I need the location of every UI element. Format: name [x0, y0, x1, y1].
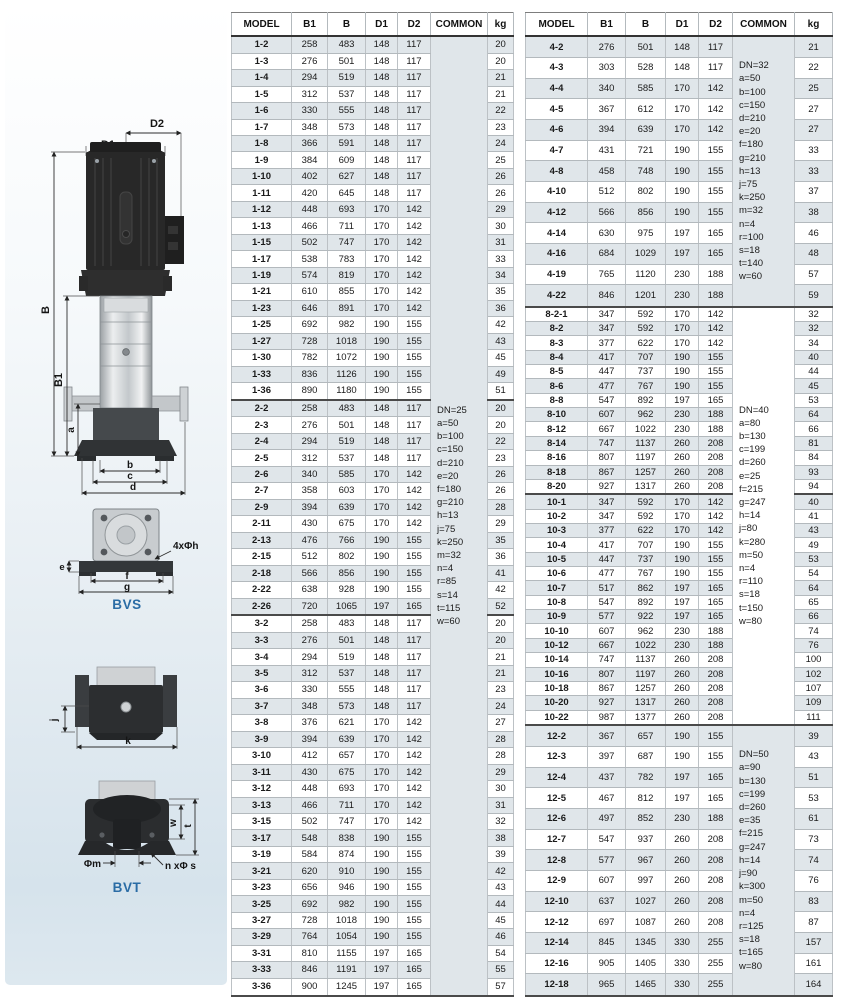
- dimension-cell: 170: [366, 731, 398, 747]
- model-cell: 1-10: [232, 168, 292, 184]
- dimension-cell: 142: [398, 781, 431, 797]
- dim-label-n-phi-s: n xΦ s: [165, 861, 196, 872]
- model-cell: 3-7: [232, 698, 292, 714]
- dim-label-g: g: [124, 582, 130, 593]
- model-cell: 1-13: [232, 218, 292, 234]
- weight-cell: 34: [795, 336, 833, 350]
- column-stub: [97, 667, 155, 687]
- common-dimension-line: d=210: [739, 112, 794, 125]
- dimension-cell: 170: [366, 499, 398, 515]
- model-cell: 3-29: [232, 929, 292, 945]
- dimension-cell: 208: [699, 465, 733, 479]
- common-dimension-line: d=260: [739, 801, 794, 814]
- common-dimension-line: n=4: [739, 907, 794, 920]
- common-dimension-line: t=115: [437, 602, 487, 615]
- weight-cell: 32: [488, 813, 514, 829]
- model-cell: 3-11: [232, 764, 292, 780]
- dimension-cell: 330: [666, 933, 699, 954]
- dimension-cell: 1197: [626, 667, 666, 681]
- terminal-box: [165, 216, 184, 264]
- model-cell: 2-9: [232, 499, 292, 515]
- dimension-cell: 197: [666, 610, 699, 624]
- dimension-cell: 260: [666, 451, 699, 465]
- dimension-cell: 1072: [328, 350, 366, 366]
- common-dimension-line: k=250: [437, 536, 487, 549]
- dimension-cell: 377: [588, 336, 626, 350]
- weight-cell: 54: [795, 567, 833, 581]
- dimension-cell: 142: [398, 300, 431, 316]
- dimension-cell: 377: [588, 524, 626, 538]
- weight-cell: 81: [795, 436, 833, 450]
- weight-cell: 53: [795, 788, 833, 809]
- weight-cell: 29: [488, 764, 514, 780]
- dimension-cell: 312: [292, 450, 328, 466]
- dimension-cell: 155: [398, 863, 431, 879]
- weight-cell: 26: [488, 168, 514, 184]
- model-cell: 10-1: [526, 494, 588, 509]
- dimension-cell: 170: [666, 307, 699, 322]
- dimension-cell: 987: [588, 710, 626, 725]
- column-header: B: [626, 13, 666, 37]
- pump-side-view-drawing: D2 D1: [5, 100, 233, 500]
- dimension-cell: 208: [699, 479, 733, 494]
- dimension-cell: 965: [588, 974, 626, 996]
- model-cell: 8-12: [526, 422, 588, 436]
- dimension-cell: 867: [588, 681, 626, 695]
- weight-cell: 28: [488, 499, 514, 515]
- dimension-cell: 190: [666, 725, 699, 747]
- dimension-cell: 1317: [626, 479, 666, 494]
- weight-cell: 44: [488, 896, 514, 912]
- catalog-page: { "diagram": { "side_view": { "d2": "D2"…: [0, 0, 842, 1000]
- dimension-cell: 607: [588, 408, 626, 422]
- dimension-cell: 170: [666, 509, 699, 523]
- dimension-cell: 684: [588, 244, 626, 265]
- dimension-cell: 155: [398, 333, 431, 349]
- dimension-cell: 512: [588, 182, 626, 203]
- dimension-cell: 667: [588, 638, 626, 652]
- model-cell: 3-3: [232, 632, 292, 648]
- common-dimensions-cell: DN=50a=90b=130c=199d=260e=35f=215g=247h=…: [733, 725, 795, 996]
- dimension-cell: 142: [398, 516, 431, 532]
- common-dimension-line: f=215: [739, 827, 794, 840]
- dimension-cell: 155: [398, 532, 431, 548]
- weight-cell: 22: [795, 58, 833, 79]
- common-dimension-line: f=215: [739, 483, 794, 496]
- dimension-cell: 610: [292, 284, 328, 300]
- dimension-cell: 639: [328, 499, 366, 515]
- dimension-cell: 547: [588, 829, 626, 850]
- common-dimension-line: w=60: [739, 270, 794, 283]
- model-cell: 4-14: [526, 223, 588, 244]
- dimension-cell: 188: [699, 809, 733, 830]
- weight-cell: 28: [488, 731, 514, 747]
- dimension-cell: 208: [699, 451, 733, 465]
- dimension-cell: 142: [699, 120, 733, 141]
- dimension-cell: 155: [699, 379, 733, 393]
- common-dimension-line: b=100: [739, 86, 794, 99]
- dimension-cell: 208: [699, 912, 733, 933]
- weight-cell: 51: [488, 383, 514, 400]
- dimension-cell: 1191: [328, 962, 366, 978]
- common-dimension-line: m=32: [437, 549, 487, 562]
- weight-cell: 26: [488, 466, 514, 482]
- dimension-cell: 190: [666, 140, 699, 161]
- dimension-cell: 1018: [328, 912, 366, 928]
- dimension-cell: 165: [398, 598, 431, 615]
- dimension-cell: 255: [699, 974, 733, 996]
- dimension-cell: 1054: [328, 929, 366, 945]
- dimension-cell: 142: [398, 218, 431, 234]
- weight-cell: 25: [488, 152, 514, 168]
- weight-cell: 21: [795, 36, 833, 58]
- dimension-cell: 376: [292, 715, 328, 731]
- dimension-cell: 188: [699, 638, 733, 652]
- dimension-cell: 448: [292, 201, 328, 217]
- weight-cell: 22: [488, 433, 514, 449]
- dimension-cell: 547: [588, 595, 626, 609]
- model-cell: 3-17: [232, 830, 292, 846]
- dimension-cell: 165: [398, 945, 431, 961]
- weight-cell: 42: [488, 317, 514, 333]
- model-cell: 10-12: [526, 638, 588, 652]
- dimension-cell: 190: [366, 929, 398, 945]
- dimension-cell: 208: [699, 871, 733, 892]
- dimension-cell: 340: [588, 78, 626, 99]
- dimension-cell: 566: [292, 565, 328, 581]
- dimension-cell: 155: [398, 366, 431, 382]
- dimension-cell: 170: [366, 813, 398, 829]
- weight-cell: 45: [488, 912, 514, 928]
- weight-cell: 48: [795, 244, 833, 265]
- dimension-cell: 512: [292, 549, 328, 565]
- dimension-cell: 997: [626, 871, 666, 892]
- dimension-cell: 819: [328, 267, 366, 283]
- weight-cell: 33: [795, 161, 833, 182]
- model-cell: 3-19: [232, 846, 292, 862]
- dimension-cell: 117: [398, 450, 431, 466]
- dimension-cell: 188: [699, 264, 733, 285]
- table-row: 4-2276501148117DN=32a=50b=100c=150d=210e…: [526, 36, 833, 58]
- weight-cell: 57: [795, 264, 833, 285]
- dimension-cell: 155: [398, 350, 431, 366]
- common-dimension-line: h=13: [739, 165, 794, 178]
- dimension-cell: 117: [398, 136, 431, 152]
- dimension-cell: 585: [328, 466, 366, 482]
- dimension-cell: 165: [398, 978, 431, 996]
- dimension-cell: 230: [666, 638, 699, 652]
- dimension-cell: 767: [626, 567, 666, 581]
- dimension-cell: 467: [588, 788, 626, 809]
- weight-cell: 20: [488, 632, 514, 648]
- common-dimension-line: w=80: [739, 615, 794, 628]
- common-dimension-line: m=50: [739, 894, 794, 907]
- dimension-cell: 1201: [626, 285, 666, 307]
- weight-cell: 74: [795, 624, 833, 638]
- dimension-cell: 501: [328, 53, 366, 69]
- model-cell: 10-10: [526, 624, 588, 638]
- dimension-cell: 142: [699, 78, 733, 99]
- dimension-cell: 170: [366, 284, 398, 300]
- weight-cell: 27: [795, 120, 833, 141]
- bvt-view-drawing: w t Φm n xΦ s: [5, 769, 233, 879]
- dimension-cell: 577: [588, 850, 626, 871]
- weight-cell: 102: [795, 667, 833, 681]
- dimension-cell: 1377: [626, 710, 666, 725]
- dimension-cell: 197: [666, 581, 699, 595]
- dimension-cell: 1126: [328, 366, 366, 382]
- dimension-cell: 197: [666, 223, 699, 244]
- dimension-cell: 142: [699, 509, 733, 523]
- weight-cell: 26: [488, 185, 514, 201]
- dimension-cell: 836: [292, 366, 328, 382]
- dimension-cell: 1155: [328, 945, 366, 961]
- dimension-cell: 230: [666, 422, 699, 436]
- dimension-cell: 1317: [626, 696, 666, 710]
- dimension-cell: 347: [588, 494, 626, 509]
- dimension-cell: 190: [366, 863, 398, 879]
- dimension-cell: 142: [398, 748, 431, 764]
- dimension-cell: 148: [366, 53, 398, 69]
- common-dimensions-cell: DN=25a=50b=100c=150d=210e=20f=180g=210h=…: [431, 36, 488, 996]
- dimension-cell: 148: [366, 168, 398, 184]
- common-dimension-line: f=180: [437, 483, 487, 496]
- common-dimension-line: s=18: [739, 933, 794, 946]
- common-dimension-line: DN=25: [437, 404, 487, 417]
- model-cell: 8-2-1: [526, 307, 588, 322]
- dimension-cell: 190: [666, 182, 699, 203]
- common-dimension-line: a=80: [739, 417, 794, 430]
- weight-cell: 46: [488, 929, 514, 945]
- common-dimension-line: n=4: [739, 562, 794, 575]
- dimension-cell: 155: [699, 140, 733, 161]
- dimension-cell: 764: [292, 929, 328, 945]
- dimension-cell: 170: [666, 120, 699, 141]
- dimension-cell: 501: [328, 417, 366, 433]
- dimension-cell: 117: [398, 417, 431, 433]
- dimension-cell: 517: [588, 581, 626, 595]
- weight-cell: 36: [488, 549, 514, 565]
- header-row: MODELB1BD1D2COMMONkg: [232, 13, 514, 37]
- dimension-cell: 728: [292, 333, 328, 349]
- model-cell: 2-5: [232, 450, 292, 466]
- dimension-cell: 155: [699, 182, 733, 203]
- dimension-cell: 190: [366, 549, 398, 565]
- dimension-cell: 155: [699, 552, 733, 566]
- dimension-cell: 188: [699, 422, 733, 436]
- dimension-cell: 148: [666, 58, 699, 79]
- dimension-cell: 276: [588, 36, 626, 58]
- dimensions-table-right-wrap: MODELB1BD1D2COMMONkg4-2276501148117DN=32…: [525, 12, 833, 997]
- dimension-cell: 622: [626, 524, 666, 538]
- dimension-cell: 874: [328, 846, 366, 862]
- dimension-cell: 208: [699, 436, 733, 450]
- dimension-cell: 807: [588, 667, 626, 681]
- dimension-cell: 170: [366, 748, 398, 764]
- dimension-cell: 501: [328, 632, 366, 648]
- dimension-cell: 142: [398, 284, 431, 300]
- dimension-cell: 767: [626, 379, 666, 393]
- dimension-cell: 367: [588, 725, 626, 747]
- dimension-cell: 148: [366, 649, 398, 665]
- model-cell: 1-2: [232, 36, 292, 53]
- weight-cell: 43: [795, 747, 833, 768]
- dimension-cell: 208: [699, 667, 733, 681]
- dimension-cell: 190: [366, 383, 398, 400]
- common-dimension-line: g=210: [437, 496, 487, 509]
- dimension-cell: 148: [366, 36, 398, 53]
- bvs-base-view-drawing: 4xΦh e f g: [5, 499, 233, 599]
- dimension-cell: 260: [666, 653, 699, 667]
- table-row: 8-2-1347592170142DN=40a=80b=130c=199d=26…: [526, 307, 833, 322]
- weight-cell: 36: [488, 300, 514, 316]
- column-header: D1: [666, 13, 699, 37]
- dimension-cell: 747: [328, 234, 366, 250]
- common-dimension-line: e=20: [437, 470, 487, 483]
- weight-cell: 24: [488, 136, 514, 152]
- dimension-cell: 170: [366, 764, 398, 780]
- dimension-cell: 155: [398, 830, 431, 846]
- dimension-cell: 720: [292, 598, 328, 615]
- weight-cell: 23: [488, 450, 514, 466]
- model-cell: 12-8: [526, 850, 588, 871]
- weight-cell: 100: [795, 653, 833, 667]
- dimension-cell: 148: [366, 86, 398, 102]
- column-header: D2: [699, 13, 733, 37]
- dimension-cell: 260: [666, 667, 699, 681]
- dimension-cell: 208: [699, 710, 733, 725]
- weight-cell: 29: [488, 201, 514, 217]
- dimension-cell: 208: [699, 829, 733, 850]
- dimension-cell: 148: [366, 615, 398, 632]
- common-dimension-line: k=280: [739, 536, 794, 549]
- dimension-cell: 142: [699, 307, 733, 322]
- dimension-cell: 165: [699, 223, 733, 244]
- dimension-cell: 197: [666, 244, 699, 265]
- dimension-cell: 155: [398, 929, 431, 945]
- dimension-cell: 967: [626, 850, 666, 871]
- dimension-cell: 846: [588, 285, 626, 307]
- weight-cell: 43: [488, 333, 514, 349]
- dimension-cell: 155: [699, 567, 733, 581]
- weight-cell: 21: [488, 649, 514, 665]
- dimension-cell: 347: [588, 307, 626, 322]
- diagram-panel: D2 D1: [5, 4, 227, 985]
- dimension-cell: 607: [588, 871, 626, 892]
- weight-cell: 30: [488, 218, 514, 234]
- weight-cell: 24: [488, 698, 514, 714]
- weight-cell: 45: [488, 350, 514, 366]
- model-cell: 12-2: [526, 725, 588, 747]
- left-flange-tab: [75, 675, 89, 727]
- pump-head: [81, 270, 170, 296]
- dimension-cell: 117: [398, 632, 431, 648]
- weight-cell: 31: [488, 234, 514, 250]
- model-cell: 4-7: [526, 140, 588, 161]
- column-header: B1: [292, 13, 328, 37]
- dimension-cell: 170: [366, 483, 398, 499]
- dimension-cell: 1257: [626, 681, 666, 695]
- dimension-cell: 1180: [328, 383, 366, 400]
- weight-cell: 64: [795, 408, 833, 422]
- model-cell: 1-33: [232, 366, 292, 382]
- dimension-cell: 142: [398, 797, 431, 813]
- model-cell: 2-26: [232, 598, 292, 615]
- dimension-cell: 502: [292, 813, 328, 829]
- dim-label-j: j: [49, 718, 60, 722]
- dimension-cell: 639: [626, 120, 666, 141]
- dimension-cell: 197: [366, 945, 398, 961]
- dimension-cell: 170: [366, 781, 398, 797]
- dimension-cell: 190: [666, 379, 699, 393]
- common-dimension-line: w=80: [739, 960, 794, 973]
- dimension-cell: 667: [588, 422, 626, 436]
- dimension-cell: 810: [292, 945, 328, 961]
- dimension-cell: 962: [626, 624, 666, 638]
- model-cell: 4-6: [526, 120, 588, 141]
- model-cell: 4-16: [526, 244, 588, 265]
- common-dimension-line: g=210: [739, 152, 794, 165]
- dimension-cell: 188: [699, 285, 733, 307]
- dimension-cell: 711: [328, 797, 366, 813]
- dimension-cell: 483: [328, 615, 366, 632]
- weight-cell: 35: [488, 284, 514, 300]
- dimension-cell: 348: [292, 119, 328, 135]
- dimension-cell: 584: [292, 846, 328, 862]
- dimension-cell: 142: [398, 731, 431, 747]
- dimension-cell: 148: [666, 36, 699, 58]
- dimension-cell: 537: [328, 665, 366, 681]
- dimension-cell: 117: [398, 152, 431, 168]
- dimension-cell: 707: [626, 350, 666, 364]
- common-dimension-line: h=14: [739, 854, 794, 867]
- dimension-cell: 946: [328, 879, 366, 895]
- model-cell: 8-14: [526, 436, 588, 450]
- dimension-cell: 142: [699, 99, 733, 120]
- dimension-cell: 721: [626, 140, 666, 161]
- dimension-cell: 747: [328, 813, 366, 829]
- dimension-cell: 538: [292, 251, 328, 267]
- dimension-cell: 170: [366, 797, 398, 813]
- dimension-cell: 519: [328, 433, 366, 449]
- dimension-cell: 142: [699, 322, 733, 336]
- dim-label-d2: D2: [150, 118, 164, 130]
- weight-cell: 31: [488, 797, 514, 813]
- dimension-cell: 190: [366, 582, 398, 598]
- dimension-cell: 547: [588, 393, 626, 407]
- dimension-cell: 891: [328, 300, 366, 316]
- column-header: D1: [366, 13, 398, 37]
- weight-cell: 93: [795, 465, 833, 479]
- column-header: COMMON: [733, 13, 795, 37]
- dimension-cell: 621: [328, 715, 366, 731]
- weight-cell: 21: [488, 665, 514, 681]
- dimension-cell: 170: [666, 322, 699, 336]
- model-cell: 12-18: [526, 974, 588, 996]
- dimension-cell: 188: [699, 408, 733, 422]
- dimension-cell: 170: [366, 201, 398, 217]
- model-cell: 3-31: [232, 945, 292, 961]
- dimension-cell: 1197: [626, 451, 666, 465]
- model-cell: 8-16: [526, 451, 588, 465]
- model-cell: 3-27: [232, 912, 292, 928]
- dimension-cell: 862: [626, 581, 666, 595]
- table-row: 1-2258483148117DN=25a=50b=100c=150d=210e…: [232, 36, 514, 53]
- dimension-cell: 148: [366, 698, 398, 714]
- dimension-cell: 117: [699, 36, 733, 58]
- dimension-cell: 937: [626, 829, 666, 850]
- dimension-cell: 637: [588, 891, 626, 912]
